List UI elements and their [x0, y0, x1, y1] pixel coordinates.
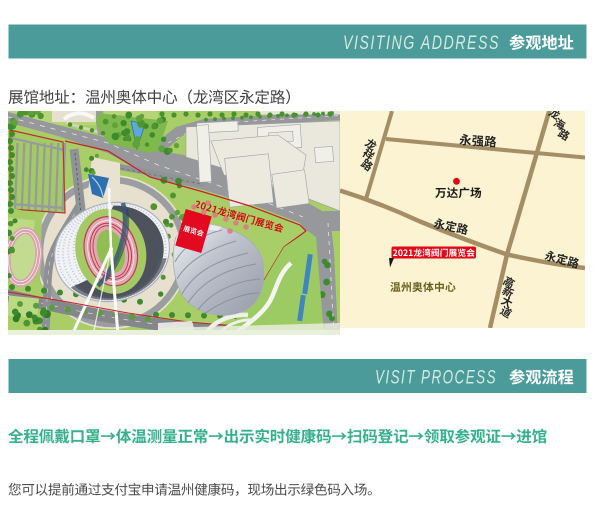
svg-text:VISITING ADDRESS: VISITING ADDRESS [343, 33, 500, 54]
svg-text:VISIT PROCESS: VISIT PROCESS [375, 368, 497, 389]
